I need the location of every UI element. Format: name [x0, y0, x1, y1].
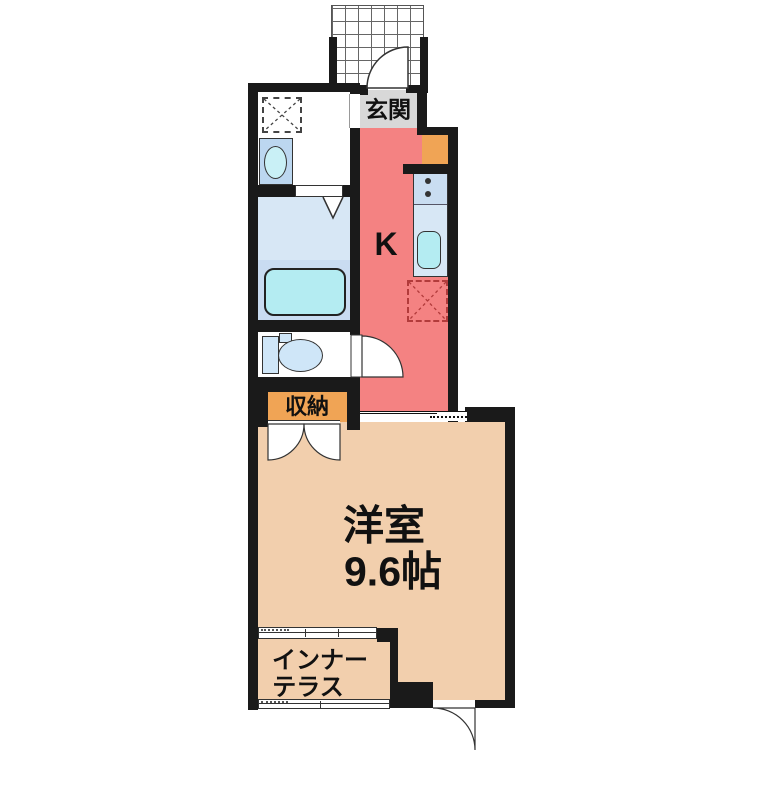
- room-name-label: 洋室: [343, 506, 425, 547]
- terrace-left-wall: [248, 628, 258, 710]
- porch-right-wall: [420, 37, 428, 88]
- window-corner-block: [377, 628, 398, 642]
- floor-plan: 玄関 K 収納 洋室 9.6帖 インナー テラス: [0, 0, 768, 800]
- bathroom-floor: [258, 197, 350, 260]
- exterior-door-swing: [433, 708, 475, 750]
- shoe-cabinet: [422, 135, 448, 164]
- kitchen-left-wall: [350, 128, 360, 335]
- jog-wall: [417, 127, 458, 135]
- kitchen-sliding-door-line: [360, 413, 437, 414]
- toilet-bowl: [278, 339, 323, 372]
- kitchen-sliding-door-dots: [430, 416, 467, 418]
- room-right-wall: [505, 412, 515, 708]
- kitchen-label: K: [374, 228, 397, 260]
- top-wall: [248, 83, 360, 92]
- entrance-label: 玄関: [365, 99, 411, 122]
- terrace-label-line1: インナー: [272, 649, 368, 673]
- bottom-wall-right: [475, 700, 515, 708]
- refrigerator-space: [407, 280, 448, 322]
- kitchen-right-wall: [448, 135, 458, 422]
- entrance-porch-tiles: [331, 5, 424, 88]
- terrace-window-sash-tick: [305, 629, 306, 637]
- storage-left-block: [248, 383, 268, 427]
- washroom-bath-wall-right: [343, 185, 360, 197]
- terrace-label-line2: テラス: [272, 676, 344, 700]
- stove-burner-dot: [425, 178, 431, 184]
- storage-label: 収納: [285, 396, 329, 418]
- stove-burner-dot: [425, 191, 431, 197]
- terrace-outer-window-dashes: [261, 701, 288, 703]
- left-outer-wall: [248, 83, 258, 383]
- closet-door-opening: [268, 420, 340, 426]
- room-left-wall: [248, 422, 258, 628]
- terrace-window-sash-tick: [338, 629, 339, 637]
- bathtub: [264, 268, 346, 316]
- terrace-outer-window-sash-tick: [320, 701, 321, 708]
- washroom-door-opening: [349, 94, 360, 128]
- bathroom-door-opening: [295, 185, 343, 197]
- washbasin-bowl: [264, 146, 287, 179]
- room-size-label: 9.6帖: [344, 552, 442, 593]
- terrace-window-rail: [259, 632, 376, 633]
- bath-toilet-wall: [248, 320, 360, 332]
- storage-right-stub: [347, 377, 360, 430]
- washroom-bath-wall-left: [258, 185, 295, 197]
- shoe-cabinet-wall: [403, 164, 448, 174]
- bottom-step-block: [390, 682, 433, 708]
- terrace-right-wall: [390, 642, 398, 682]
- kitchen-sink: [417, 231, 441, 269]
- porch-left-wall: [329, 37, 337, 88]
- washing-machine-space: [262, 97, 302, 133]
- terrace-outer-window-rail: [259, 703, 389, 704]
- terrace-window-dashes: [261, 629, 289, 631]
- toilet-tank: [262, 336, 279, 374]
